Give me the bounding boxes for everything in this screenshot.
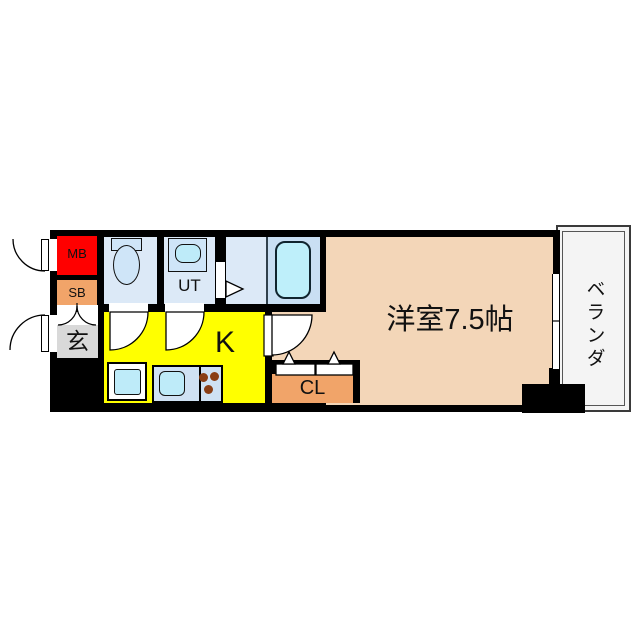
- balcony-window: [552, 274, 560, 369]
- entrance-door-leaf: [41, 315, 49, 352]
- entrance-door-arc-icon: [10, 315, 45, 350]
- entrance-door-opening: [50, 315, 57, 352]
- floor-plan: MB SB 玄 UT K CL 洋室7.5帖 ベランダ: [0, 0, 640, 640]
- refrigerator-space-icon: [107, 362, 147, 401]
- counter-divider-line: [199, 367, 201, 401]
- bathroom-floor: [226, 237, 267, 304]
- meter-box-door-leaf: [41, 239, 49, 271]
- closet-right-wall: [353, 360, 360, 403]
- window-sash-divider: [553, 320, 559, 322]
- refrigerator-inner-icon: [114, 369, 141, 395]
- toilet-bowl-icon: [113, 245, 140, 285]
- veranda-label: ベランダ: [581, 270, 607, 380]
- shoe-box-label: SB: [57, 280, 97, 305]
- closet-top-wall: [265, 360, 357, 374]
- bathtub-icon: [275, 241, 311, 299]
- closet-label: CL: [272, 374, 353, 402]
- stove-burner-icon: [204, 385, 213, 394]
- shoe-box-door-strip: [57, 305, 98, 325]
- washer-basin-icon: [175, 244, 201, 263]
- entrance-label: 玄: [57, 326, 98, 357]
- main-room-label: 洋室7.5帖: [350, 303, 550, 337]
- stove-burner-icon: [199, 373, 208, 382]
- utility-label: UT: [164, 272, 215, 298]
- bathroom-divider-line: [266, 237, 268, 304]
- meter-box-label: MB: [57, 236, 97, 270]
- stove-burner-icon: [210, 372, 219, 381]
- corner-wall-block: [522, 384, 585, 413]
- kitchen-sink-icon: [159, 371, 185, 396]
- kitchen-label: K: [203, 326, 247, 360]
- meter-box-door-opening: [50, 239, 57, 271]
